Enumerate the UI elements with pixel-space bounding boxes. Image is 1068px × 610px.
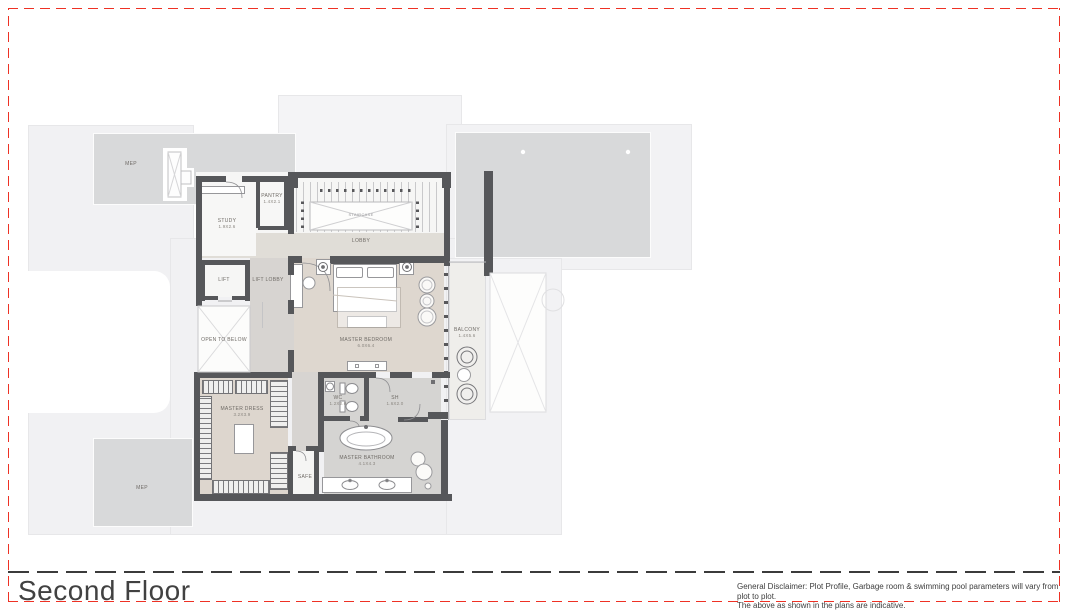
room-dim: 1.9X2.6 bbox=[218, 224, 236, 230]
window-line bbox=[448, 262, 449, 420]
room-dim: 3.2X3.9 bbox=[220, 412, 263, 418]
wall-segment bbox=[288, 446, 293, 494]
wardrobe-icon bbox=[235, 380, 268, 394]
wall-segment bbox=[194, 372, 292, 378]
stair-railing-dots bbox=[416, 196, 419, 228]
room-label-open-to-below: OPEN TO BELOW bbox=[201, 337, 247, 343]
wardrobe-icon bbox=[270, 380, 288, 428]
room-label-pantry: PANTRY1.4X2.1 bbox=[261, 193, 283, 205]
wardrobe-icon bbox=[212, 480, 270, 494]
wall-segment bbox=[360, 416, 369, 421]
room-name: LIFT LOBBY bbox=[252, 277, 283, 283]
wall-segment bbox=[288, 256, 302, 263]
wall-segment bbox=[398, 417, 428, 422]
wall-segment bbox=[484, 171, 493, 276]
room-label-safe: SAFE bbox=[298, 474, 312, 480]
room-label-master-dress: MASTER DRESS3.2X3.9 bbox=[220, 406, 263, 418]
corridor-floor bbox=[292, 372, 320, 452]
room-name: LOBBY bbox=[352, 238, 370, 244]
wall-segment bbox=[314, 446, 319, 494]
stair-railing-dots bbox=[301, 196, 304, 228]
wall-segment bbox=[194, 494, 452, 501]
wall-segment bbox=[318, 378, 324, 452]
room-label-mep-bottom: MEP bbox=[136, 485, 148, 491]
wall-segment bbox=[322, 416, 350, 421]
wall-segment bbox=[194, 378, 200, 496]
safe-floor bbox=[293, 451, 314, 494]
driveway-cutout bbox=[24, 271, 170, 413]
wall-segment bbox=[256, 180, 260, 228]
wall-segment bbox=[284, 180, 290, 226]
page-title: Second Floor bbox=[18, 575, 191, 607]
wardrobe-icon bbox=[198, 396, 212, 480]
room-label-study: STUDY1.9X2.6 bbox=[218, 218, 236, 230]
wall-segment bbox=[200, 260, 205, 301]
wall-segment bbox=[288, 300, 294, 314]
room-label-master-bathroom: MASTER BATHROOM4.1X4.3 bbox=[339, 455, 394, 467]
room-dim: 1.2X2.0 bbox=[330, 401, 347, 407]
room-name: MEP bbox=[136, 485, 148, 491]
plan-sheet: MEP MEP STUDY1.9X2.6 PANTRY1.4X2.1 STAIR… bbox=[0, 0, 1068, 610]
rug-icon bbox=[337, 287, 401, 328]
wall-segment bbox=[242, 176, 290, 182]
wall-segment bbox=[258, 226, 288, 230]
wall-segment bbox=[330, 256, 450, 263]
room-name: MEP bbox=[125, 161, 137, 167]
room-label-wc: WC1.2X2.0 bbox=[330, 395, 347, 407]
room-label-balcony: BALCONY1.4X5.6 bbox=[454, 327, 480, 339]
balcony-floor bbox=[449, 262, 486, 420]
reference-line bbox=[262, 302, 263, 328]
room-name: OPEN TO BELOW bbox=[201, 337, 247, 343]
pillow-icon bbox=[367, 267, 394, 278]
wall-segment bbox=[288, 350, 294, 372]
room-name: SAFE bbox=[298, 474, 312, 480]
floor-plan: MEP MEP STUDY1.9X2.6 PANTRY1.4X2.1 STAIR… bbox=[0, 0, 1068, 571]
nightstand-icon bbox=[316, 259, 331, 275]
room-dim: 4.1X4.3 bbox=[339, 461, 394, 467]
wall-segment bbox=[428, 412, 448, 419]
skylight-pad bbox=[180, 168, 194, 187]
dresser-knob bbox=[375, 364, 379, 368]
wall-segment bbox=[444, 256, 450, 266]
room-label-master-bedroom: MASTER BEDROOM6.0X6.4 bbox=[340, 337, 392, 349]
wall-segment bbox=[296, 172, 442, 178]
wall-segment bbox=[441, 420, 448, 501]
pillow-icon bbox=[336, 267, 363, 278]
wall-segment bbox=[390, 372, 412, 378]
footer-divider-rule bbox=[8, 571, 1060, 573]
room-dim: 1.6X2.0 bbox=[387, 401, 404, 407]
dresser-knob bbox=[355, 364, 359, 368]
room-label-staircase: STAIRCASE bbox=[348, 212, 373, 217]
room-label-lobby: LOBBY bbox=[352, 238, 370, 244]
study-cabinet-icon bbox=[200, 186, 245, 194]
mep-roof-area bbox=[93, 438, 193, 527]
room-dim: 1.4X5.6 bbox=[454, 333, 480, 339]
wardrobe-icon bbox=[202, 380, 233, 394]
wall-segment bbox=[232, 296, 250, 300]
window-mullions bbox=[444, 266, 448, 416]
room-name: LIFT bbox=[218, 277, 229, 283]
room-dim: 6.0X6.4 bbox=[340, 343, 392, 349]
disclaimer-text: General Disclaimer: Plot Profile, Garbag… bbox=[737, 582, 1067, 610]
wall-segment bbox=[200, 296, 218, 300]
room-label-lift: LIFT bbox=[218, 277, 229, 283]
wall-segment bbox=[444, 178, 450, 258]
room-name: STAIRCASE bbox=[348, 212, 373, 217]
disclaimer-line-1: General Disclaimer: Plot Profile, Garbag… bbox=[737, 582, 1067, 601]
stair-railing-dots bbox=[320, 189, 416, 192]
room-dim: 1.4X2.1 bbox=[261, 199, 283, 205]
wc-sink-icon bbox=[325, 381, 335, 392]
disclaimer-line-2: The above as shown in the plans are indi… bbox=[737, 601, 1067, 610]
wall-segment bbox=[364, 376, 369, 420]
room-label-lift-lobby: LIFT LOBBY bbox=[252, 277, 283, 283]
room-label-sh: SH1.6X2.0 bbox=[387, 395, 404, 407]
wardrobe-icon bbox=[270, 452, 288, 490]
dress-island-icon bbox=[234, 424, 254, 454]
wall-segment bbox=[200, 260, 250, 265]
dresser-icon bbox=[347, 361, 387, 371]
room-label-mep-top: MEP bbox=[125, 161, 137, 167]
wall-segment bbox=[288, 263, 294, 275]
wall-segment bbox=[432, 372, 450, 378]
plot-area bbox=[278, 95, 462, 180]
wall-segment bbox=[245, 260, 250, 301]
vanity-icon bbox=[322, 477, 412, 493]
